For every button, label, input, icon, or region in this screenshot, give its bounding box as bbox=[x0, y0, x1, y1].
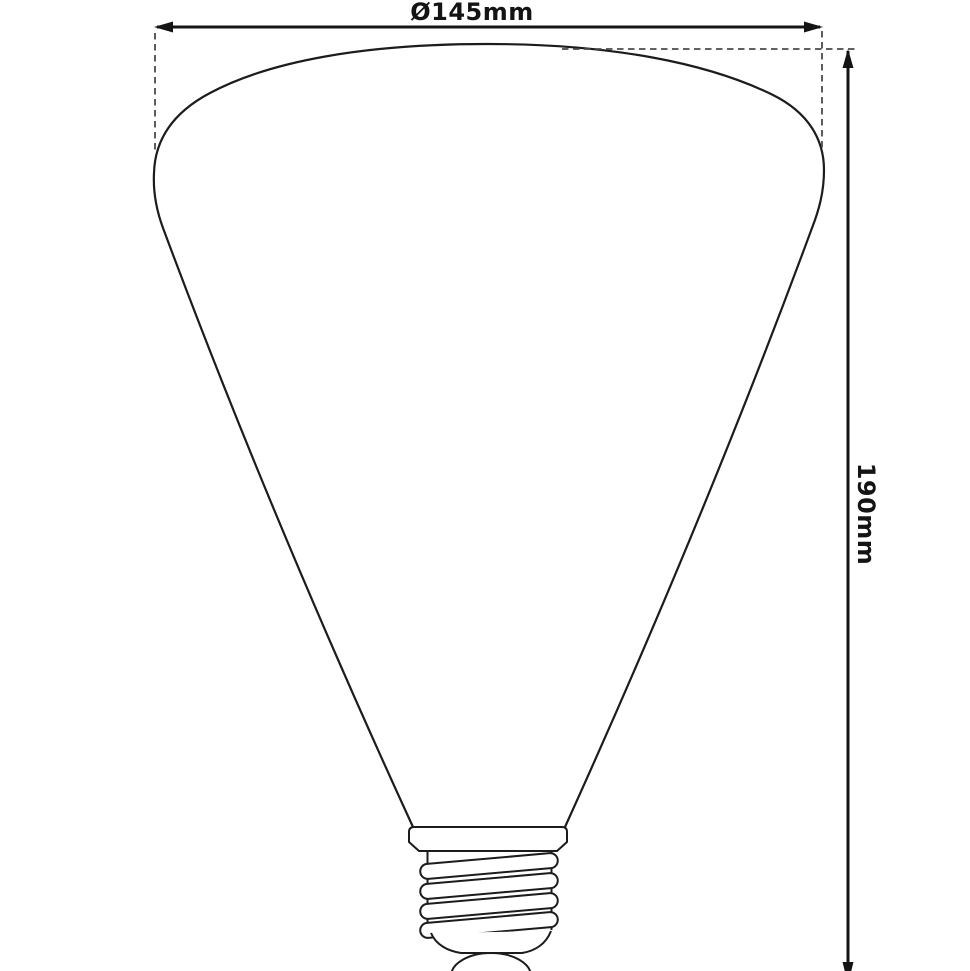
diameter-arrow-left-icon bbox=[154, 22, 173, 33]
diagram-canvas: Ø145mm 190mm bbox=[0, 0, 970, 971]
bulb-dimension-diagram: Ø145mm 190mm bbox=[0, 0, 970, 971]
base-contact-tip bbox=[451, 953, 531, 971]
height-arrow-down-icon bbox=[843, 962, 854, 971]
height-arrow-up-icon bbox=[843, 49, 854, 68]
bulb-glass-outline bbox=[154, 44, 824, 827]
diameter-arrow-right-icon bbox=[804, 22, 823, 33]
base-bowl bbox=[431, 931, 551, 953]
height-label: 190mm bbox=[852, 463, 880, 566]
base-collar bbox=[409, 827, 567, 851]
diameter-label: Ø145mm bbox=[410, 0, 534, 26]
